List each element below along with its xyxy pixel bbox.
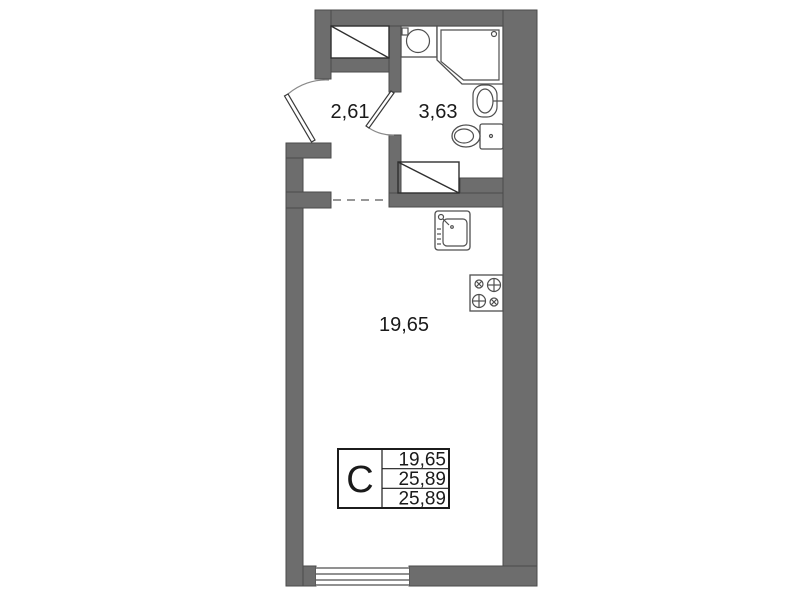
wall-hall-top-arm	[286, 143, 331, 158]
shower-icon	[437, 26, 503, 84]
entrance-door-icon	[285, 80, 330, 142]
legend-type-label: С	[346, 459, 373, 501]
bathroom-door-icon	[366, 91, 394, 135]
wall-divider-lower	[389, 135, 401, 196]
floorplan-drawing: 2,61 3,63 19,65 С 19,65 25,89 25,89	[0, 0, 799, 600]
legend-row-3: 25,89	[398, 489, 446, 510]
wall-hall-mid-arm	[286, 192, 331, 208]
room-label-living: 19,65	[379, 314, 429, 336]
floorplan-canvas: 2,61 3,63 19,65 С 19,65 25,89 25,89	[0, 0, 799, 600]
kitchen-sink-icon	[435, 211, 470, 250]
wall-left-main	[286, 143, 303, 586]
room-label-hall: 2,61	[331, 101, 370, 123]
legend-row-2: 25,89	[398, 469, 446, 490]
wall-under-wardrobe	[331, 58, 389, 72]
room-label-bathroom: 3,63	[419, 101, 458, 123]
wall-right	[503, 10, 537, 586]
legend-table: С 19,65 25,89 25,89	[338, 449, 449, 510]
vanity-sink-icon	[473, 85, 503, 117]
wall-left-upper	[315, 10, 331, 79]
toilet-icon	[452, 124, 503, 149]
wall-divider-upper	[389, 26, 401, 92]
wall-bathroom-bottom	[389, 193, 503, 207]
wardrobe-icon	[331, 26, 389, 58]
wall-bottom-right	[409, 566, 537, 586]
appliance-spot-icon	[398, 162, 459, 193]
window-icon	[316, 567, 409, 586]
stove-icon	[470, 275, 503, 311]
wall-bathroom-stub	[460, 178, 503, 193]
legend-row-1: 19,65	[398, 450, 446, 471]
washbasin-icon	[401, 26, 437, 57]
